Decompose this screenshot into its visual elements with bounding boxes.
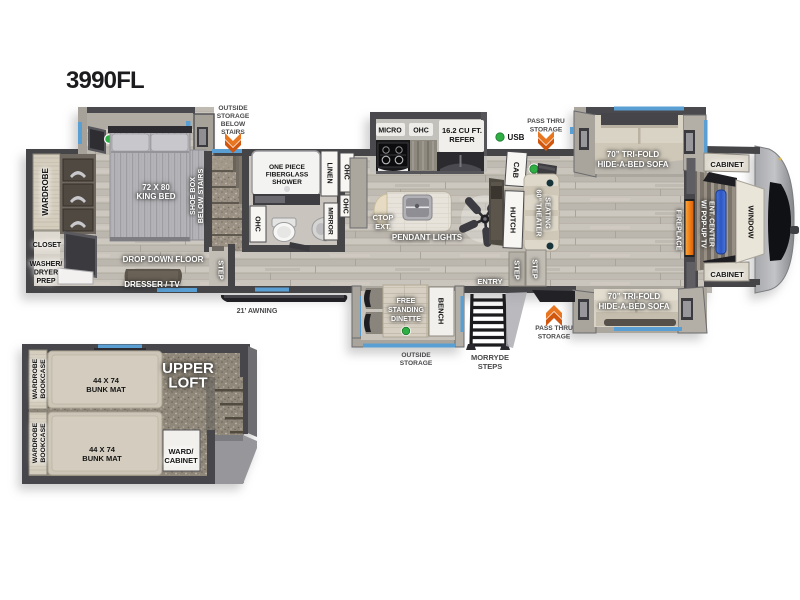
svg-text:DROP DOWN FLOOR: DROP DOWN FLOOR <box>123 255 204 264</box>
svg-text:SEATING: SEATING <box>544 197 553 229</box>
svg-text:WINDOW: WINDOW <box>747 206 756 240</box>
svg-text:WARDROBEBOOKCASE: WARDROBEBOOKCASE <box>32 358 47 399</box>
svg-text:60” THEATER: 60” THEATER <box>535 190 544 238</box>
svg-text:PASS THRUSTORAGE: PASS THRUSTORAGE <box>535 325 573 341</box>
svg-text:21’ AWNING: 21’ AWNING <box>237 306 278 315</box>
svg-text:OHC: OHC <box>342 198 349 214</box>
svg-text:STEP: STEP <box>217 260 226 280</box>
svg-text:CABINET: CABINET <box>710 270 744 279</box>
svg-text:WARDROBEBOOKCASE: WARDROBEBOOKCASE <box>32 422 47 463</box>
svg-text:ENT. CENTER: ENT. CENTER <box>708 201 715 247</box>
svg-text:OUTSIDESTORAGE: OUTSIDESTORAGE <box>400 352 433 367</box>
svg-text:ENTRY: ENTRY <box>477 277 502 286</box>
svg-text:CLOSET: CLOSET <box>33 242 62 249</box>
svg-text:CTOPEXT.: CTOPEXT. <box>373 213 394 231</box>
svg-text:FIREPLACE: FIREPLACE <box>675 210 684 251</box>
svg-text:STEP: STEP <box>513 260 522 280</box>
svg-text:CAB: CAB <box>511 162 521 179</box>
svg-text:OHC: OHC <box>413 128 429 135</box>
svg-text:3990FL: 3990FL <box>66 67 144 94</box>
svg-text:WARDROBE: WARDROBE <box>41 168 50 216</box>
svg-text:MIRROR: MIRROR <box>327 207 334 235</box>
svg-text:STEP: STEP <box>531 259 540 279</box>
svg-text:HUTCH: HUTCH <box>509 207 518 233</box>
svg-text:BENCH: BENCH <box>437 298 446 325</box>
svg-text:PENDANT LIGHTS: PENDANT LIGHTS <box>392 233 463 242</box>
svg-text:UPPERLOFT: UPPERLOFT <box>162 360 214 392</box>
svg-text:PASS THRUSTORAGE: PASS THRUSTORAGE <box>527 118 565 134</box>
svg-text:USB: USB <box>508 133 525 142</box>
svg-text:W/ POP-UP TV: W/ POP-UP TV <box>700 200 707 248</box>
svg-text:70” TRI-FOLDHIDE-A-BED SOFA: 70” TRI-FOLDHIDE-A-BED SOFA <box>598 292 669 311</box>
svg-text:OHC: OHC <box>343 164 350 180</box>
svg-text:WARD/CABINET: WARD/CABINET <box>164 447 198 465</box>
svg-text:CABINET: CABINET <box>710 160 744 169</box>
svg-text:70” TRI-FOLDHIDE-A-BED SOFA: 70” TRI-FOLDHIDE-A-BED SOFA <box>597 150 668 169</box>
svg-text:DRESSER / TV: DRESSER / TV <box>124 280 180 289</box>
svg-text:OHC: OHC <box>254 216 261 232</box>
svg-text:LINEN: LINEN <box>326 163 333 184</box>
svg-text:MICRO: MICRO <box>378 128 402 135</box>
